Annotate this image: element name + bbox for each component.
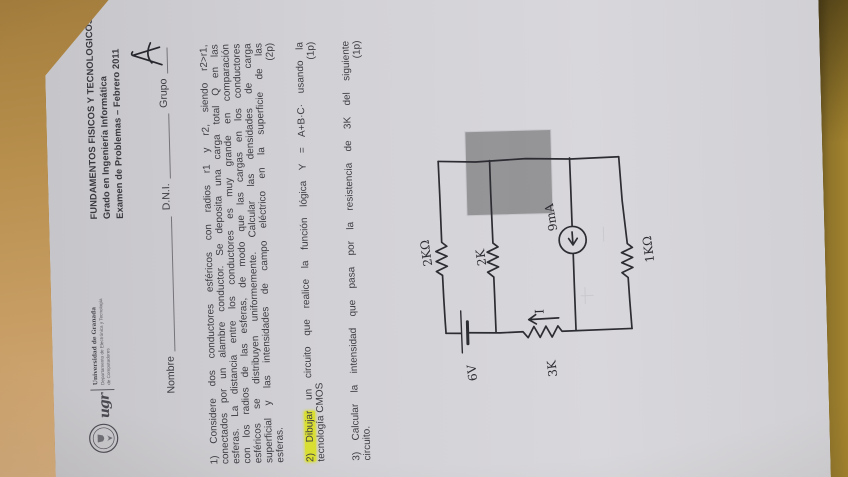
current-source-label: 9mA xyxy=(542,202,560,232)
university-logo: ugr Universidad de Granada Departamento … xyxy=(83,298,121,455)
resistor-2k-label: 2K xyxy=(473,247,489,266)
resistor-1kohm-label: 1KΩ xyxy=(640,235,657,263)
name-label: Nombre xyxy=(164,351,177,394)
problem-2-points: (1p) xyxy=(305,42,316,60)
name-blank-line xyxy=(168,216,176,351)
problem-3-line2: circuito. xyxy=(361,426,373,461)
logo-divider xyxy=(90,389,114,391)
problem-1-points: (2p) xyxy=(264,43,275,61)
resistor-3k-label: 3K xyxy=(544,359,560,378)
student-fields-row: Nombre D.N.I. Grupo xyxy=(156,41,177,393)
bottom-wire-with-1kohm-resistor xyxy=(619,156,635,328)
resistor-2kohm-label: 2KΩ xyxy=(417,239,435,267)
current-source-arrow-icon xyxy=(568,232,577,245)
battery-long-plate xyxy=(461,311,463,353)
problem-2-line2: tecnología CMOS xyxy=(314,383,327,462)
university-seal-icon xyxy=(86,422,121,455)
left-rail-with-3k-resistor xyxy=(468,324,633,339)
photo-of-exam-on-desk: ugr Universidad de Granada Departamento … xyxy=(0,0,848,477)
problem-1-text: 1) Considere dos conductores esféricos c… xyxy=(198,43,286,465)
erased-pencil-rectangle xyxy=(465,129,553,215)
handwritten-group-value-A xyxy=(128,39,165,70)
hand-drawn-circuit-diagram: 6V 2KΩ 2K 9mA 1KΩ 3K I xyxy=(405,119,674,396)
department-line2: de Computadores xyxy=(104,298,112,385)
university-name-block: Universidad de Granada Departamento de E… xyxy=(91,298,111,385)
group-label: Grupo xyxy=(157,73,170,107)
top-wire-with-2kohm-resistor xyxy=(434,161,449,333)
problem-3-points: (1p) xyxy=(351,40,362,58)
problem-3-text: 3) Calcular la intensidad que pasa por l… xyxy=(340,40,373,460)
problem-1-line-end: esferas. xyxy=(274,427,286,463)
current-I-arrow-icon xyxy=(529,314,559,324)
ugr-script-logo: ugr xyxy=(97,394,114,419)
battery-voltage-label: 6V xyxy=(464,364,480,382)
left-rail-upper-wire xyxy=(446,333,461,334)
exam-paper: ugr Universidad de Granada Departamento … xyxy=(43,0,831,477)
erased-pencil-marks xyxy=(579,227,605,304)
exam-title-block: FUNDAMENTOS FISICOS Y TECNOLOGICOS Grado… xyxy=(83,17,128,220)
dni-label: D.N.I. xyxy=(160,178,173,210)
problem-2-text: 2) Dibujar un circuito que realice la fu… xyxy=(294,42,327,462)
current-I-label: I xyxy=(532,309,546,314)
dni-blank-line xyxy=(165,114,171,179)
